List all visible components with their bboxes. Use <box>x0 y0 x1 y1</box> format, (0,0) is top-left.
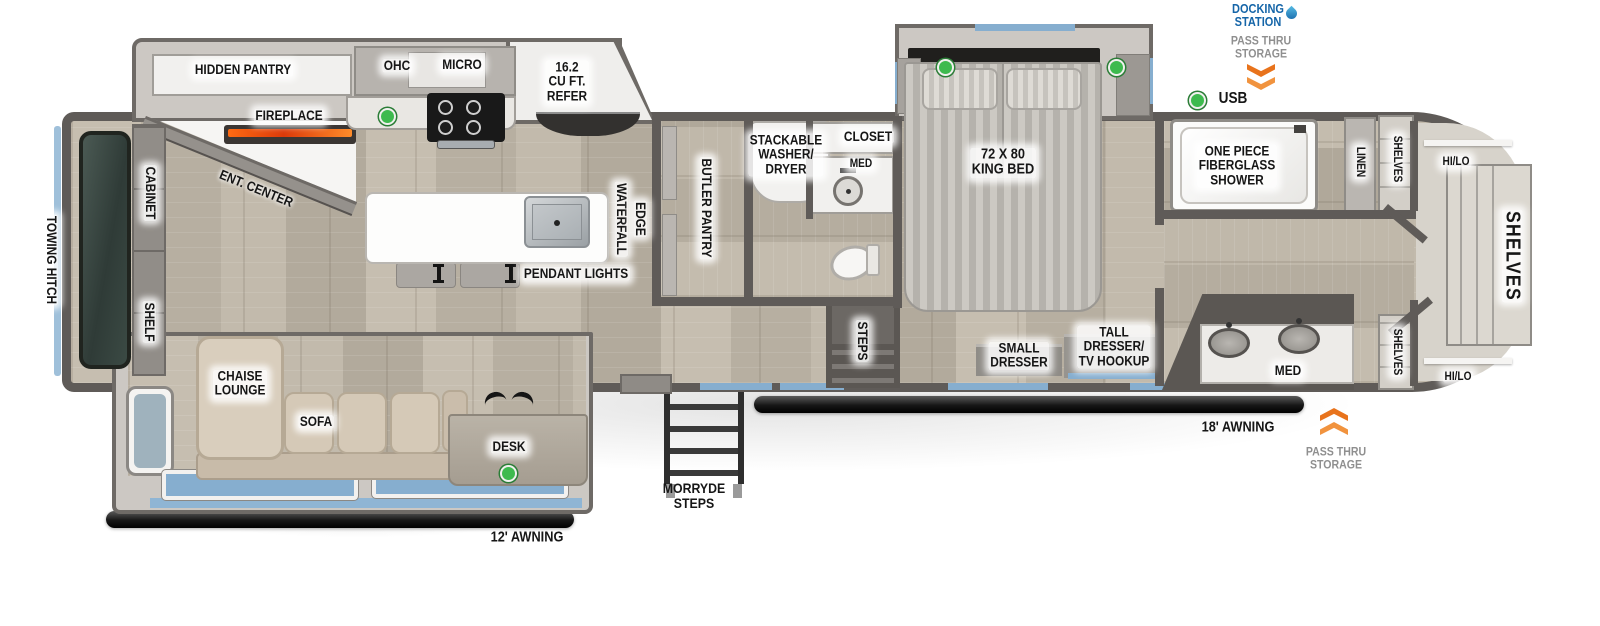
label-awning-front: 12' AWNING <box>489 530 565 545</box>
label-docking-station: DOCKING STATION <box>1230 3 1285 30</box>
sink-faucet <box>554 220 560 226</box>
label-pendant-lights: PENDANT LIGHTS <box>522 267 630 281</box>
usb-dot-kitchen <box>379 108 396 125</box>
label-towing-hitch: TOWING HITCH <box>44 214 58 306</box>
label-morryde-steps: MORRYDE STEPS <box>661 481 727 511</box>
label-micro: MICRO <box>440 58 483 72</box>
water-drop-icon <box>1284 6 1300 22</box>
vanity-sink <box>1208 328 1250 358</box>
label-butler-pantry: BUTLER PANTRY <box>699 157 713 260</box>
rv-floorplan: TOWING HITCH HIDDEN PANTRY OHC MICRO 16.… <box>0 0 1600 626</box>
vanity-sink <box>1278 324 1320 354</box>
label-shelves-bath: SHELVES <box>1391 134 1403 184</box>
pantry-shelf <box>662 214 677 296</box>
wall <box>893 116 902 308</box>
usb-dot-bed-right <box>1108 59 1125 76</box>
fireplace-flame <box>228 129 352 137</box>
label-shelves-main: SHELVES <box>1501 209 1522 303</box>
step-tread <box>832 364 894 369</box>
wall <box>652 116 661 306</box>
label-sofa: SOFA <box>298 415 334 429</box>
usb-dot-bed-left <box>937 59 954 76</box>
label-ohc: OHC <box>382 59 412 73</box>
awning-rear-tube <box>754 396 1304 413</box>
wall-window-strip <box>700 383 772 390</box>
hilo-rod-bottom <box>1424 358 1512 364</box>
label-hilo-top: HI/LO <box>1441 156 1472 168</box>
label-linen: LINEN <box>1354 145 1366 179</box>
burner <box>438 100 453 115</box>
label-edge: EDGE <box>633 200 647 237</box>
wall <box>1155 121 1164 225</box>
label-washer-dryer: STACKABLE WASHER/ DRYER <box>748 134 824 177</box>
label-hidden-pantry: HIDDEN PANTRY <box>193 63 293 77</box>
label-pass-thru-rear: PASS THRU STORAGE <box>1304 445 1368 470</box>
label-steps: STEPS <box>855 320 869 362</box>
wall <box>1155 288 1164 386</box>
shelf-divider <box>1476 166 1478 344</box>
cooktop <box>427 93 505 142</box>
label-waterfall: WATERFALL <box>614 181 628 256</box>
vanity-faucet <box>1296 318 1302 324</box>
label-cabinet: CABINET <box>143 165 157 221</box>
pendant-light-icon <box>509 267 513 280</box>
pass-thru-arrow-down <box>1247 77 1275 90</box>
pendant-light-icon <box>437 267 441 280</box>
wall <box>1164 210 1416 219</box>
bed-slide-window <box>975 24 1075 31</box>
pillow <box>922 68 998 110</box>
label-pass-thru-front: PASS THRU STORAGE <box>1229 34 1293 59</box>
cooktop-grill <box>437 140 495 149</box>
ladder-foot <box>733 484 742 498</box>
label-king-bed: 72 X 80 KING BED <box>970 148 1036 179</box>
burner <box>466 120 481 135</box>
label-shelves-bottom: SHELVES <box>1391 327 1403 377</box>
step-tread <box>832 378 894 383</box>
wall-window-strip <box>948 383 1048 390</box>
label-shower: ONE PIECE FIBERGLASS SHOWER <box>1197 145 1277 188</box>
tall-dresser-window <box>1068 373 1160 379</box>
label-med-mid: MED <box>848 158 874 170</box>
shower-head <box>1294 125 1306 133</box>
label-hilo-bottom: HI/LO <box>1443 371 1474 383</box>
label-shelf: SHELF <box>142 301 156 343</box>
sofa-cushion <box>337 392 387 454</box>
label-chaise-lounge: CHAISE LOUNGE <box>213 370 267 399</box>
burner <box>466 100 481 115</box>
ladder-rung <box>670 448 738 454</box>
sofa-cushion <box>390 392 440 454</box>
island-seat <box>396 262 456 288</box>
usb-dot-legend <box>1189 92 1206 109</box>
bath-sink-drain <box>846 189 851 194</box>
vanity-faucet <box>1226 322 1232 328</box>
pendant-light-icon <box>505 280 516 283</box>
ladder-rung <box>670 426 738 432</box>
pendant-light-icon <box>433 280 444 283</box>
label-small-dresser: SMALL DRESSER <box>989 342 1050 371</box>
shelf-divider <box>1460 166 1462 344</box>
wall <box>652 297 902 306</box>
wall <box>1410 121 1418 211</box>
label-desk: DESK <box>491 440 528 454</box>
ladder-rung <box>670 470 738 476</box>
usb-dot-desk <box>500 465 517 482</box>
label-usb: USB <box>1217 91 1249 107</box>
label-awning-rear: 18' AWNING <box>1200 420 1276 435</box>
label-closet: CLOSET <box>842 130 894 144</box>
ladder-rung <box>670 404 738 410</box>
label-tall-dresser: TALL DRESSER/ TV HOOKUP <box>1077 326 1151 369</box>
pantry-shelf <box>662 126 677 200</box>
burner <box>438 120 453 135</box>
label-med-rear: MED <box>1273 364 1303 378</box>
entry-threshold <box>620 374 672 394</box>
label-refer: 16.2 CU FT. REFER <box>545 61 589 104</box>
hilo-rod-top <box>1424 140 1512 146</box>
front-window <box>79 131 131 369</box>
toilet-tank <box>866 244 880 276</box>
shelf-divider <box>1492 166 1494 344</box>
pillow <box>1006 68 1082 110</box>
pass-thru-arrow-down <box>1247 64 1275 77</box>
slide-end-window-glass <box>134 394 166 468</box>
label-fireplace: FIREPLACE <box>254 109 325 123</box>
